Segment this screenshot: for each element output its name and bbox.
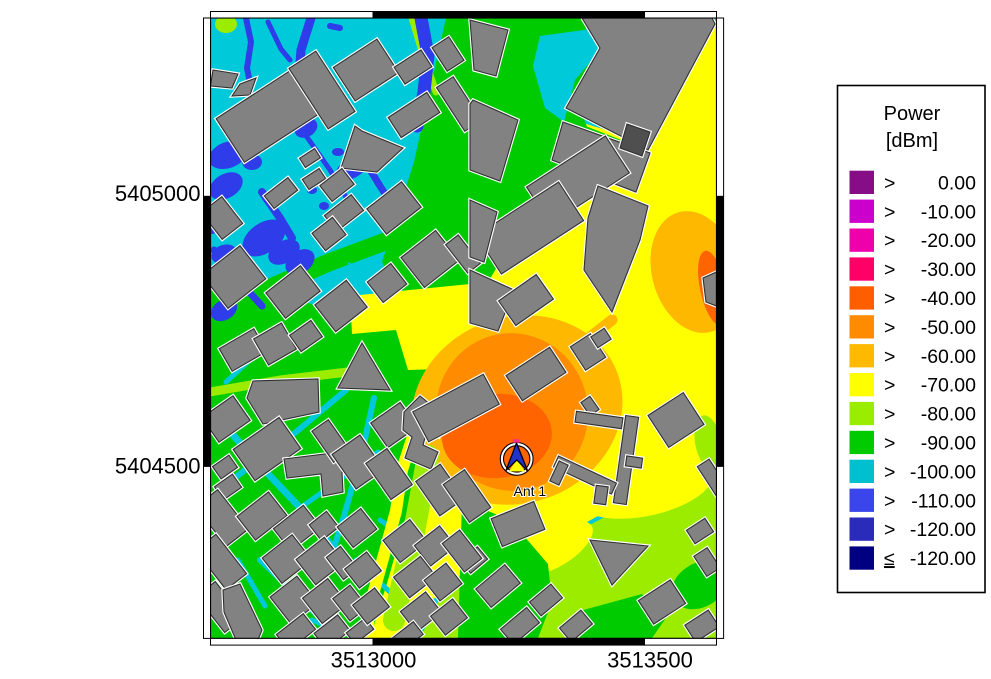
- svg-text:-20.00: -20.00: [921, 230, 976, 252]
- svg-text:>: >: [884, 288, 895, 310]
- svg-text:>: >: [884, 461, 895, 483]
- svg-text:>: >: [884, 404, 895, 426]
- svg-text:-100.00: -100.00: [910, 461, 976, 483]
- svg-text:Power: Power: [884, 103, 941, 125]
- svg-text:-80.00: -80.00: [921, 404, 976, 426]
- svg-text:-30.00: -30.00: [921, 259, 976, 281]
- svg-text:-10.00: -10.00: [921, 201, 976, 223]
- svg-text:>: >: [884, 172, 895, 194]
- svg-text:-50.00: -50.00: [921, 317, 976, 339]
- svg-text:3513000: 3513000: [331, 648, 417, 673]
- svg-text:>: >: [884, 375, 895, 397]
- svg-text:>: >: [884, 259, 895, 281]
- svg-text:>: >: [884, 201, 895, 223]
- svg-text:>: >: [884, 490, 895, 512]
- svg-text:-110.00: -110.00: [911, 490, 976, 512]
- svg-text:-120.00: -120.00: [910, 519, 976, 541]
- svg-text:>: >: [884, 433, 895, 455]
- svg-text:≤: ≤: [884, 548, 895, 570]
- svg-text:>: >: [884, 519, 895, 541]
- svg-text:>: >: [884, 346, 895, 368]
- svg-text:-40.00: -40.00: [921, 288, 976, 310]
- svg-text:5405000: 5405000: [115, 181, 201, 206]
- svg-text:-70.00: -70.00: [921, 375, 976, 397]
- svg-text:-60.00: -60.00: [921, 346, 976, 368]
- svg-text:>: >: [884, 317, 895, 339]
- svg-text:-90.00: -90.00: [921, 433, 976, 455]
- svg-text:3513500: 3513500: [607, 648, 693, 673]
- svg-text:5404500: 5404500: [115, 454, 201, 479]
- svg-text:>: >: [884, 230, 895, 252]
- svg-text:[dBm]: [dBm]: [886, 130, 938, 152]
- svg-text:0.00: 0.00: [938, 172, 976, 194]
- svg-text:-120.00: -120.00: [910, 548, 976, 570]
- svg-text:Ant 1: Ant 1: [514, 483, 547, 499]
